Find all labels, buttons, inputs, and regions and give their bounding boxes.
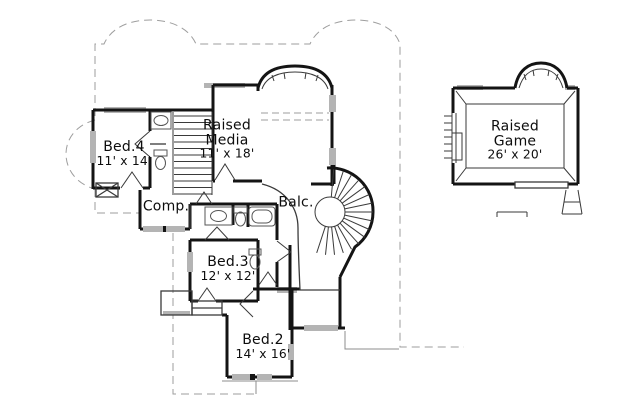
straight-stairs	[173, 112, 212, 195]
game-room-details	[444, 69, 582, 217]
media-bay-window	[262, 72, 328, 89]
window-post	[163, 226, 166, 232]
media-bay-ceiling	[261, 113, 329, 120]
roof-thin-lines	[222, 331, 399, 394]
floor-plan-drawing	[0, 0, 620, 415]
floor-plan: Bed.4 11' x 14' Raised Media 11' x 18' C…	[0, 0, 620, 415]
spiral-stairs	[315, 169, 373, 255]
